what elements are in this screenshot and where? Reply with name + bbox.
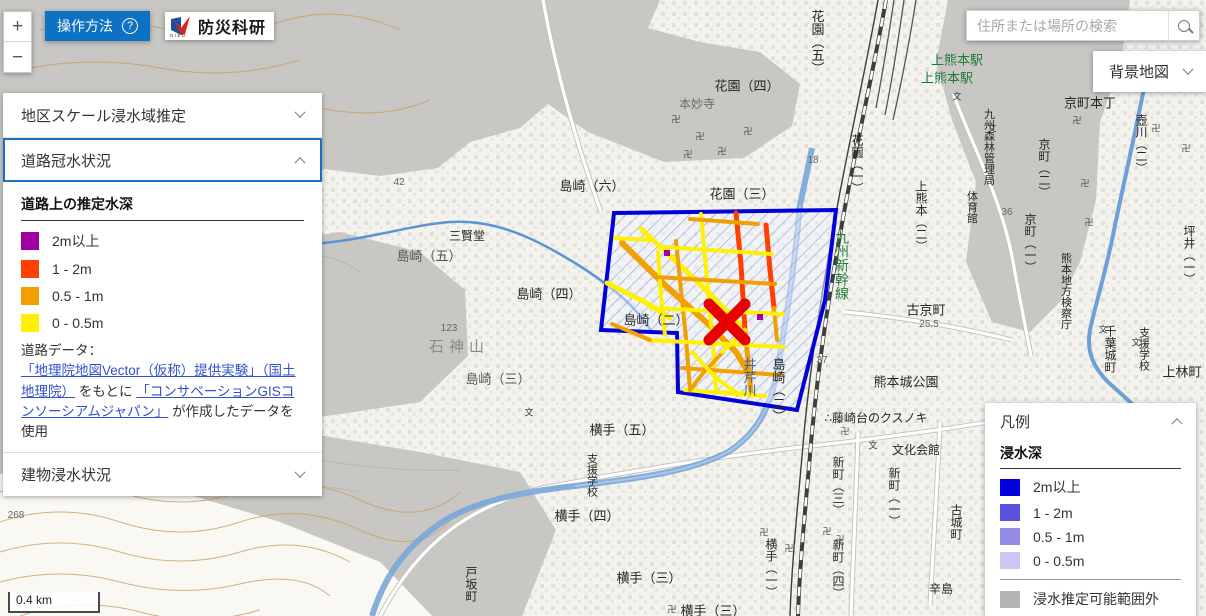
zoom-controls: + − [3, 11, 32, 73]
legend-row: 0.5 - 1m [1000, 528, 1181, 545]
nied-logo-icon: NIED [170, 15, 192, 37]
legend-label: 0.5 - 1m [1033, 529, 1084, 545]
legend-label: 0 - 0.5m [1033, 553, 1084, 569]
nied-logo-text: 防災科研 [198, 14, 266, 38]
section-label: 地区スケール浸水域推定 [21, 105, 186, 126]
divider [1000, 579, 1181, 580]
chevron-down-icon [294, 107, 305, 118]
color-swatch [1000, 504, 1020, 521]
scale-bar: 0.4 km [8, 592, 100, 613]
section-road-flooding[interactable]: 道路冠水状況 [3, 138, 322, 182]
zoom-out-button[interactable]: − [4, 42, 31, 72]
road-depth-title: 道路上の推定水深 [21, 194, 304, 221]
legend-label: 2m以上 [1033, 477, 1080, 497]
legend-row: 2m以上 [1000, 477, 1181, 497]
search-button[interactable] [1168, 11, 1199, 40]
help-button-label: 操作方法 [57, 16, 113, 36]
help-button[interactable]: 操作方法 ? [45, 11, 150, 41]
scale-label: 0.4 km [16, 593, 52, 607]
basemap-button-label: 背景地図 [1109, 61, 1169, 82]
legend-label: 0 - 0.5m [52, 315, 103, 331]
chevron-up-icon [294, 157, 305, 168]
color-swatch [1000, 479, 1020, 496]
legend-label: 1 - 2m [52, 261, 92, 277]
search-box [966, 10, 1200, 41]
note-mid: をもとに [79, 384, 133, 399]
legend-subtitle: 浸水深 [1000, 443, 1181, 469]
color-swatch [21, 314, 39, 332]
legend-panel: 凡例 浸水深 2m以上 1 - 2m 0.5 - 1m 0 - 0.5m [985, 403, 1196, 616]
legend-row: 0 - 0.5m [1000, 552, 1181, 569]
legend-row-out-of-range: 浸水推定可能範囲外 [1000, 589, 1181, 609]
legend-label: 2m以上 [52, 231, 99, 251]
section-label: 建物浸水状況 [21, 464, 111, 485]
chevron-down-icon [294, 466, 305, 477]
search-icon [1178, 20, 1190, 32]
zoom-in-button[interactable]: + [4, 12, 31, 42]
nied-logo[interactable]: NIED 防災科研 [165, 12, 274, 40]
color-swatch [1000, 528, 1020, 545]
color-swatch [21, 232, 39, 250]
layer-panel: 地区スケール浸水域推定 道路冠水状況 道路上の推定水深 2m以上 1 - 2m … [3, 93, 322, 496]
note-prefix: 道路データ： [21, 343, 102, 358]
search-input[interactable] [967, 11, 1168, 40]
legend-body: 浸水深 2m以上 1 - 2m 0.5 - 1m 0 - 0.5m 浸水推定可能… [985, 439, 1196, 616]
section-district-inundation[interactable]: 地区スケール浸水域推定 [3, 93, 322, 138]
road-flooding-content: 道路上の推定水深 2m以上 1 - 2m 0.5 - 1m 0 - 0.5m 道… [3, 182, 322, 452]
legend-label: 1 - 2m [1033, 505, 1073, 521]
legend-row: 0 - 0.5m [21, 314, 304, 332]
flood-map-app: 島崎（六）花園（四）本妙寺花園（三）三賢堂島崎（五）島崎（四）石神山島崎（三）島… [0, 0, 1206, 616]
legend-label: 0.5 - 1m [52, 288, 103, 304]
legend-title: 凡例 [1000, 411, 1030, 432]
legend-header[interactable]: 凡例 [985, 403, 1196, 439]
legend-row: 1 - 2m [1000, 504, 1181, 521]
chevron-up-icon [1171, 418, 1182, 429]
chevron-down-icon [1182, 63, 1193, 74]
legend-row: 1 - 2m [21, 260, 304, 278]
color-swatch [1000, 552, 1020, 569]
legend-row: 0.5 - 1m [21, 287, 304, 305]
question-icon: ? [122, 18, 138, 34]
legend-label: 浸水推定可能範囲外 [1033, 589, 1159, 609]
color-swatch [21, 260, 39, 278]
basemap-button[interactable]: 背景地図 [1093, 51, 1206, 92]
section-label: 道路冠水状況 [21, 150, 111, 171]
road-data-source-note: 道路データ： 「地理院地図Vector（仮称）提供実験」（国土地理院） をもとに… [21, 341, 304, 442]
color-swatch [1000, 591, 1020, 608]
legend-row: 2m以上 [21, 231, 304, 251]
section-building-inundation[interactable]: 建物浸水状況 [3, 452, 322, 496]
color-swatch [21, 287, 39, 305]
